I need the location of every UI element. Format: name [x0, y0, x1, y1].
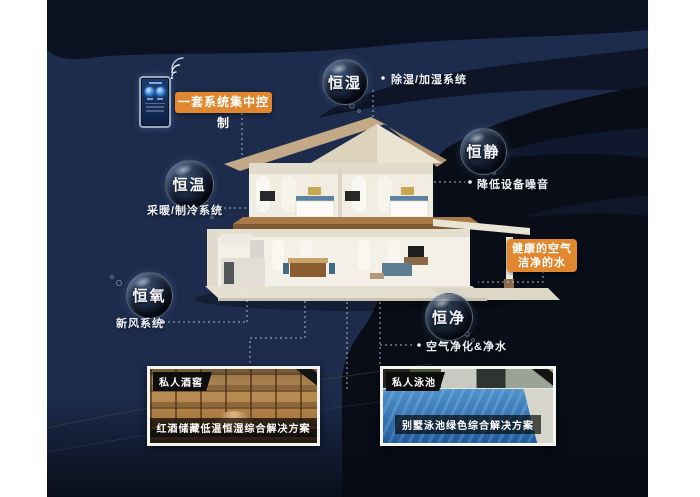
callout-healthy-air-water: 健康的空气 洁净的水 [507, 239, 577, 272]
card-private-pool: 私人泳池 别墅泳池绿色综合解决方案 [380, 366, 556, 446]
screen-text-line [146, 106, 164, 108]
pool-photo: 私人泳池 别墅泳池绿色综合解决方案 [383, 369, 553, 443]
screen-text-line [146, 110, 164, 112]
corner-ribbon [293, 369, 317, 387]
bubble-label: 恒静 [466, 141, 500, 162]
bubble-label: 恒湿 [328, 72, 362, 93]
dial-icon [145, 87, 154, 96]
wifi-icon [171, 58, 183, 79]
card-tag: 私人酒窖 [153, 372, 212, 391]
smart-control-panel [139, 76, 171, 128]
dial-icon [156, 87, 165, 96]
system-label-purification: 空气净化&净水 [426, 338, 507, 354]
bubble-purity: 恒净 [425, 293, 473, 341]
system-label-heating-cooling: 采暖/制冷系统 [147, 202, 223, 218]
dial-labels [142, 98, 168, 100]
callout-line-2: 洁净的水 [507, 256, 577, 270]
screen-title-bar [149, 82, 162, 84]
bubble-humidity: 恒湿 [322, 59, 368, 105]
bubble-oxygen: 恒氧 [126, 272, 173, 319]
callout-line-1: 健康的空气 [507, 242, 577, 256]
smart-home-infographic: 一套系统集中控制 健康的空气 洁净的水 恒湿 恒静 恒温 恒氧 恒净 除湿/加湿… [0, 0, 700, 497]
system-label-noise: 降低设备噪音 [477, 176, 549, 192]
bubble-label: 恒温 [172, 174, 206, 195]
bubble-label: 恒净 [432, 307, 466, 328]
bubble-quiet: 恒静 [460, 128, 507, 175]
card-tag: 私人泳池 [386, 372, 445, 391]
callout-central-control: 一套系统集中控制 [175, 92, 272, 113]
screen-divider [145, 103, 165, 104]
control-panel-screen [142, 79, 168, 125]
system-label-dehumidify: 除湿/加湿系统 [391, 71, 467, 87]
wine-cellar-photo: 私人酒窖 红酒储藏低温恒湿综合解决方案 [150, 369, 317, 443]
card-caption: 红酒储藏低温恒湿综合解决方案 [150, 418, 317, 437]
card-caption: 别墅泳池绿色综合解决方案 [395, 415, 541, 434]
system-label-fresh-air: 新风系统 [116, 315, 164, 331]
bubble-label: 恒氧 [132, 285, 166, 306]
card-wine-cellar: 私人酒窖 红酒储藏低温恒湿综合解决方案 [147, 366, 320, 446]
control-dials [142, 87, 168, 96]
